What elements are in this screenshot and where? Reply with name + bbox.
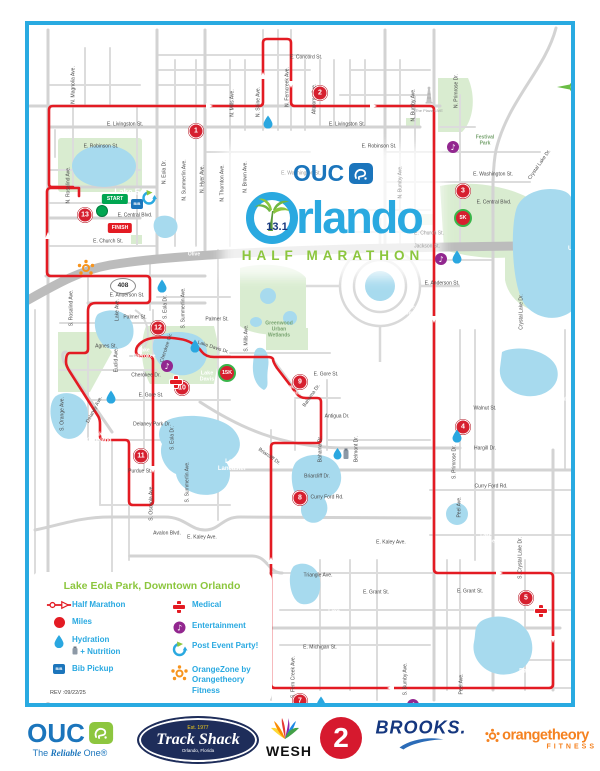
legend-panel: Lake Eola Park, Downtown Orlando Half Ma…: [32, 572, 272, 702]
orangetheory-fitness-label: FITNESS: [477, 744, 597, 751]
wesh-wordmark: WESH: [266, 743, 312, 759]
mile-icon: [46, 617, 72, 628]
legend-item-label: Bib Pickup: [72, 664, 113, 674]
title-block: OUC 13.1 rlando HALF MARATHON: [228, 160, 438, 263]
trackshack-city: Orlando, Florida: [182, 749, 214, 754]
wesh-channel-2: 2: [320, 717, 362, 759]
svg-text:♪: ♪: [176, 623, 181, 632]
sponsor-brooks: BROOKS.: [375, 719, 466, 756]
legend-item-label: Hydration + Nutrition: [72, 635, 120, 657]
checkpoint-marker-10k: 10K: [474, 703, 492, 707]
entertainment-icon: ♪: [166, 621, 192, 634]
droplet-icon: [571, 655, 575, 668]
legend-location-title: Lake Eola Park, Downtown Orlando: [32, 572, 272, 592]
legend-item-orangezone: OrangeZone byOrangetheory Fitness: [166, 665, 272, 696]
race-map-poster: E. Concord St.E. Livingston St.E. Living…: [0, 0, 600, 771]
nbc-peacock-icon: [268, 715, 302, 741]
ouc-sponsor-wordmark: OUC: [27, 720, 85, 746]
legend-item-label: Half Marathon: [72, 600, 125, 610]
race-type: HALF MARATHON: [228, 248, 438, 263]
legend-item-label: OrangeZone byOrangetheory Fitness: [192, 665, 272, 696]
legend-column: Medical♪EntertainmentPost Event Party!Or…: [152, 600, 272, 703]
ouc-tagline: The Reliable One®: [27, 748, 113, 758]
distance-badge: 13.1: [267, 221, 288, 233]
ouc-sponsor-icon: [89, 722, 113, 744]
bib-icon: BIB: [46, 664, 72, 674]
trackshack-wordmark: Track Shack: [156, 731, 239, 749]
brooks-swoosh-icon: [395, 737, 447, 751]
mile-marker-6: 6: [524, 706, 539, 708]
droplet-icon: [46, 635, 72, 648]
legend-item-mile: Miles: [46, 617, 152, 628]
party-icon: [166, 641, 192, 658]
race-city: rlando: [296, 195, 422, 240]
legend-item-label: Post Event Party!: [192, 641, 258, 651]
sponsor-orangetheory: orangetheory FITNESS: [477, 728, 597, 751]
orangetheory-splat-icon: [485, 728, 500, 743]
ouc-logo-icon: [349, 163, 373, 184]
legend-item-entertainment: ♪Entertainment: [166, 621, 272, 634]
revision-date: REV :09/22/25: [50, 690, 86, 696]
brooks-wordmark: BROOKS.: [375, 719, 466, 737]
orangezone-icon: [166, 665, 192, 682]
legend-item-route: Half Marathon: [46, 600, 152, 610]
legend-item-medical: Medical: [166, 600, 272, 614]
legend-item-label: Medical: [192, 600, 221, 610]
sponsor-bar: OUC The Reliable One® Est. 1977 Track Sh…: [0, 709, 600, 771]
legend-column: Half MarathonMilesHydration + NutritionB…: [32, 600, 152, 703]
legend-item-droplet: Hydration + Nutrition: [46, 635, 152, 657]
orlando-o-logo: 13.1: [244, 189, 300, 245]
orangetheory-wordmark: orangetheory: [502, 728, 589, 744]
legend-item-label: Miles: [72, 617, 92, 627]
sponsor-ouc: OUC The Reliable One®: [27, 720, 113, 758]
legend-item-party: Post Event Party!: [166, 641, 272, 658]
ouc-wordmark: OUC: [293, 160, 344, 187]
legend-item-label: Entertainment: [192, 621, 246, 631]
sponsor-trackshack: Est. 1977 Track Shack Orlando, Florida: [137, 716, 259, 764]
legend-item-bib: BIBBib Pickup: [46, 664, 152, 674]
sponsor-wesh: WESH 2: [266, 713, 362, 765]
medical-icon: [166, 600, 192, 614]
route-icon: [46, 600, 72, 610]
